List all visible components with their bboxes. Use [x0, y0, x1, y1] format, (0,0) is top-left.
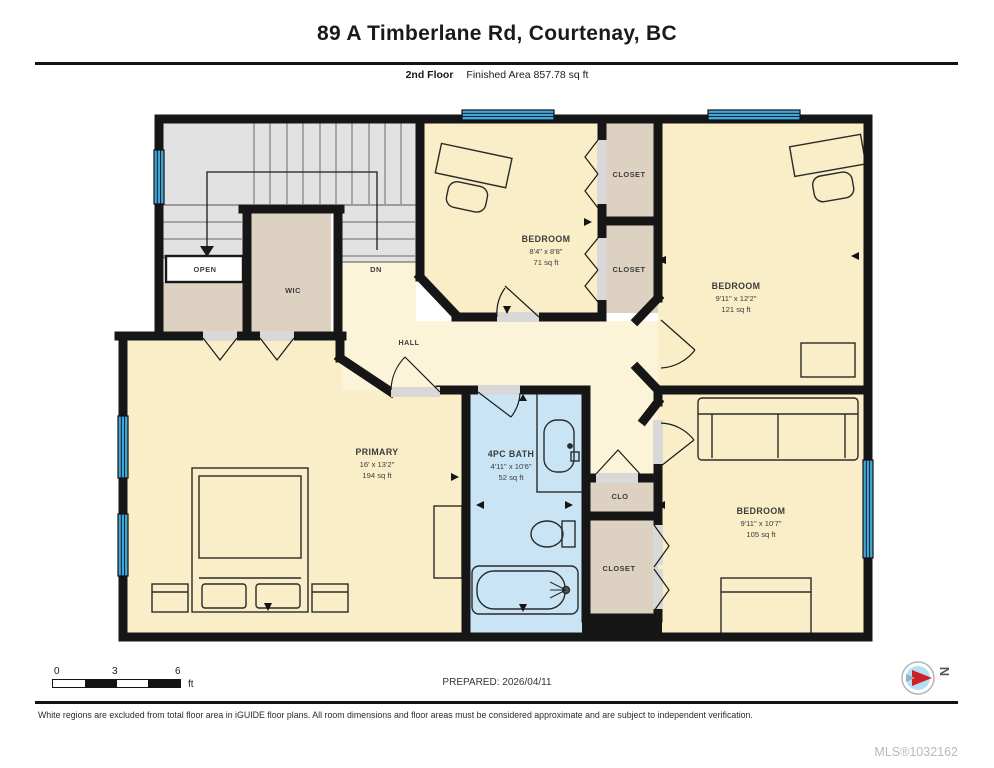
window — [118, 416, 128, 478]
window — [118, 514, 128, 576]
label-primary-dims: 16' x 13'2" — [360, 460, 395, 469]
room-bedroom-top — [420, 119, 602, 317]
compass-north-label: N — [937, 667, 952, 676]
label-bath-dims: 4'11" x 10'6" — [490, 462, 531, 471]
label-bedroom-right-dims: 9'11" x 12'2" — [715, 294, 756, 303]
scale-tick-6: 6 — [175, 666, 181, 677]
label-closet-top: CLOSET — [613, 170, 646, 179]
label-bedroom-bottom-name: BEDROOM — [737, 506, 786, 516]
label-open: OPEN — [194, 265, 217, 274]
label-bedroom-top-name: BEDROOM — [522, 234, 571, 244]
disclaimer-text: White regions are excluded from total fl… — [38, 710, 958, 720]
label-closet-mid: CLOSET — [613, 265, 646, 274]
room-bedroom-right — [658, 119, 868, 390]
room-wic — [251, 213, 331, 334]
wall-block — [582, 616, 662, 641]
window — [462, 110, 554, 120]
scale-tick-3: 3 — [112, 666, 118, 677]
label-bedroom-bottom-dims: 9'11" x 10'7" — [740, 519, 781, 528]
label-bedroom-top-area: 71 sq ft — [534, 258, 560, 267]
label-bedroom-bottom-area: 105 sq ft — [746, 530, 776, 539]
label-bedroom-right-name: BEDROOM — [712, 281, 761, 291]
label-wic: WIC — [285, 286, 301, 295]
scale-tick-0: 0 — [54, 666, 60, 677]
compass-icon: N — [888, 656, 958, 702]
room-bath — [466, 390, 586, 637]
label-dn: DN — [370, 265, 382, 274]
window — [863, 460, 873, 558]
floorplan: BEDROOM 8'4" x 8'8" 71 sq ft BEDROOM 9'1… — [0, 0, 994, 768]
prepared-date: PREPARED: 2026/04/11 — [0, 677, 994, 688]
label-primary-name: PRIMARY — [355, 447, 398, 457]
footer-divider — [35, 701, 958, 704]
label-hall: HALL — [399, 339, 420, 347]
label-clo: CLO — [611, 492, 628, 501]
window — [708, 110, 800, 120]
label-primary-area: 194 sq ft — [362, 471, 392, 480]
label-bedroom-top-dims: 8'4" x 8'8" — [529, 247, 563, 256]
window — [154, 150, 164, 204]
label-bath-area: 52 sq ft — [499, 473, 525, 482]
label-closet-bottom: CLOSET — [603, 564, 636, 573]
mls-number: MLS®1032162 — [874, 745, 958, 759]
label-bath-name: 4PC BATH — [488, 449, 535, 459]
label-bedroom-right-area: 121 sq ft — [721, 305, 751, 314]
